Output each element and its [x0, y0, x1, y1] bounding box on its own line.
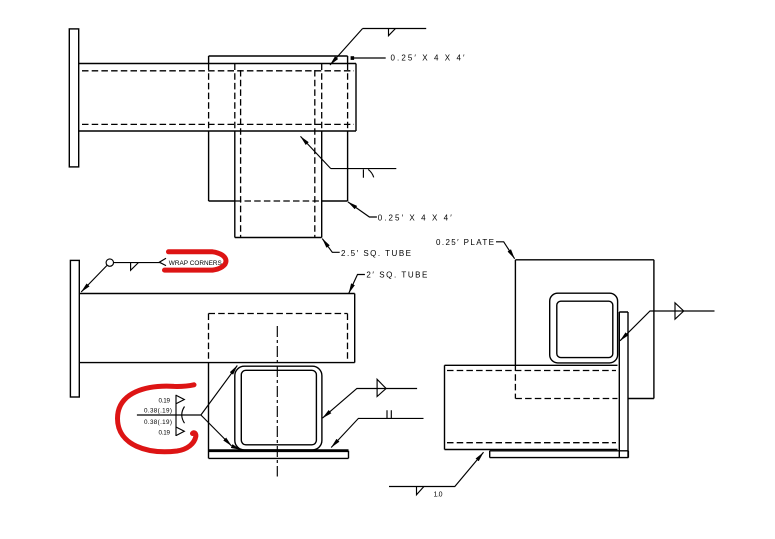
svg-text:0.38(.19): 0.38(.19): [144, 408, 172, 415]
svg-text:WRAP CORNERS: WRAP CORNERS: [169, 260, 222, 267]
svg-text:0.25′ PLATE: 0.25′ PLATE: [436, 238, 494, 247]
svg-text:1.0: 1.0: [434, 492, 443, 499]
svg-text:2′ SQ. TUBE: 2′ SQ. TUBE: [366, 271, 427, 280]
svg-text:2.5′ SQ. TUBE: 2.5′ SQ. TUBE: [341, 249, 411, 258]
svg-text:0.38(.19): 0.38(.19): [144, 419, 172, 426]
svg-text:0.19: 0.19: [159, 430, 171, 437]
svg-text:0.19: 0.19: [159, 398, 171, 405]
